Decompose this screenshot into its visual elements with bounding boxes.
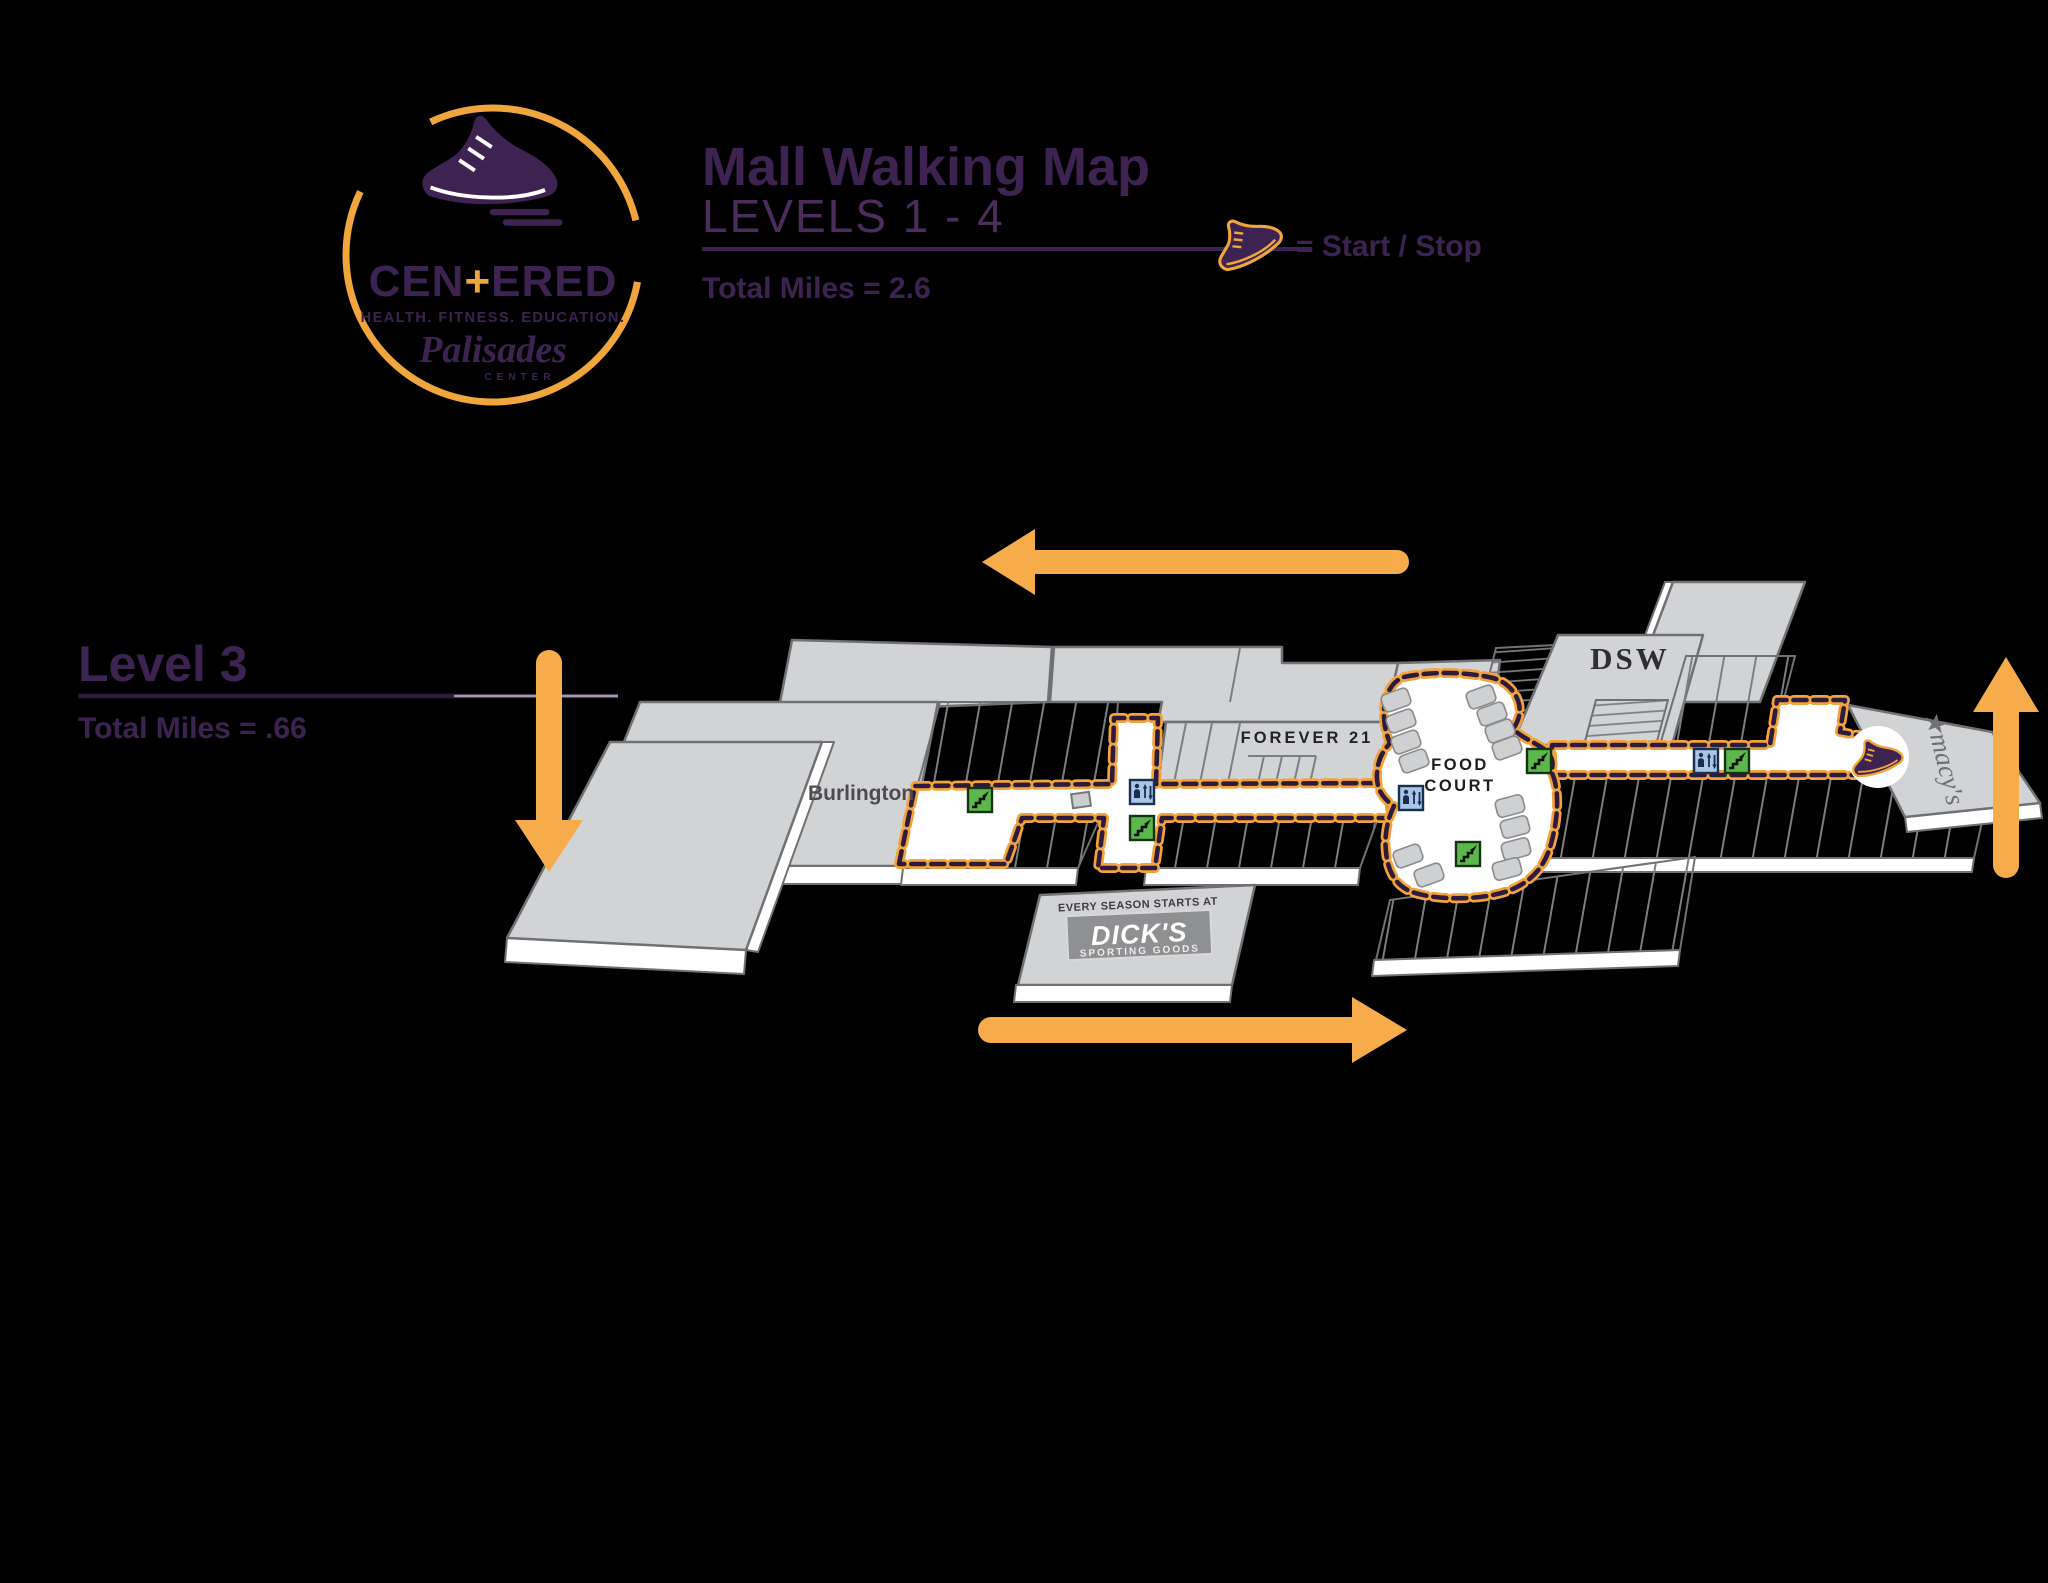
dsw-label: DSW (1590, 641, 1670, 676)
elevator-icon (1694, 749, 1718, 773)
kiosk (1071, 792, 1091, 808)
forever21-label: FOREVER 21 (1241, 729, 1374, 747)
escalator-icon (1527, 749, 1551, 773)
logo-brand: CEN+ERED (369, 257, 618, 306)
page-title: Mall Walking Map (702, 137, 1150, 197)
logo-tagline: HEALTH. FITNESS. EDUCATION. (361, 310, 626, 326)
store-strip-upper-west (918, 702, 1118, 784)
logo-sneaker-icon (422, 116, 559, 223)
dicks-block: EVERY SEASON STARTS AT DICK'S SPORTING G… (1014, 885, 1255, 1002)
legend-sneaker-icon (1207, 206, 1284, 273)
plate-edge (1144, 868, 1360, 885)
level-name: Level 3 (78, 636, 248, 692)
header: Mall Walking Map LEVELS 1 - 4 Total Mile… (702, 137, 1312, 305)
escalator-icon (1456, 842, 1480, 866)
legend: = Start / Stop (1207, 206, 1482, 273)
page-background: CEN+ERED HEALTH. FITNESS. EDUCATION. Pal… (0, 0, 2048, 1583)
arrow-left-icon (982, 529, 1397, 595)
arrow-right-icon (991, 997, 1407, 1063)
escalator-icon (1725, 749, 1749, 773)
logo-venue: Palisades (418, 329, 567, 371)
elevator-icon (1399, 786, 1423, 810)
stairs-strip-under-dsw (1584, 700, 1668, 745)
mall-walking-map-canvas: CEN+ERED HEALTH. FITNESS. EDUCATION. Pal… (0, 0, 2048, 1583)
escalator-icon (968, 788, 992, 812)
logo-venue-sub: CENTER (484, 372, 555, 383)
legend-label: = Start / Stop (1296, 230, 1482, 263)
total-miles-all: Total Miles = 2.6 (702, 272, 931, 305)
food-court-label-2: COURT (1424, 777, 1495, 795)
brand-logo: CEN+ERED HEALTH. FITNESS. EDUCATION. Pal… (298, 60, 689, 451)
store-strip-lower-center (1148, 818, 1378, 868)
burlington-label: Burlington (808, 782, 914, 805)
page-subtitle: LEVELS 1 - 4 (702, 190, 1005, 242)
logo-ring (298, 60, 689, 451)
start-stop-marker (1847, 726, 1909, 788)
mall-map: ★macy's EVERY SEASON STARTS AT DICK'S SP… (505, 529, 2042, 1063)
level-total-miles: Total Miles = .66 (78, 712, 307, 745)
escalator-icon (1130, 816, 1154, 840)
elevator-icon (1130, 780, 1154, 804)
plate-edge (901, 868, 1078, 885)
food-court-label-1: FOOD (1431, 756, 1489, 774)
